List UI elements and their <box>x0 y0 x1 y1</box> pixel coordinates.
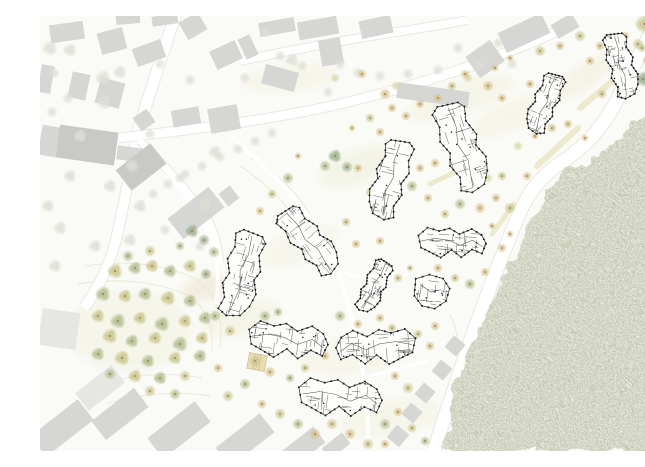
tree-trunk-dot <box>134 375 136 377</box>
tree <box>362 438 374 450</box>
tree-trunk-dot <box>201 337 203 339</box>
tree <box>147 188 159 200</box>
tree <box>420 436 430 446</box>
tree-trunk-dot <box>121 357 123 359</box>
tree-trunk-dot <box>509 57 511 59</box>
tree <box>401 111 411 121</box>
tree <box>497 171 507 181</box>
tree <box>447 81 457 91</box>
tree-trunk-dot <box>464 73 466 75</box>
tree <box>144 128 156 140</box>
tree-trunk-dot <box>254 360 256 362</box>
tree <box>379 88 391 100</box>
site-plan-drawing <box>40 16 645 451</box>
tree-trunk-dot <box>567 123 569 125</box>
tree <box>255 206 265 216</box>
tree-trunk-dot <box>379 240 381 242</box>
tree <box>402 68 414 80</box>
tree <box>574 30 586 42</box>
tree-trunk-dot <box>424 440 426 442</box>
tree <box>267 189 277 199</box>
tree <box>159 224 171 236</box>
tree <box>249 135 261 147</box>
tree-trunk-dot <box>437 267 439 269</box>
tree-trunk-dot <box>149 390 151 392</box>
tree-trunk-dot <box>357 167 359 169</box>
tree-trunk-dot <box>277 311 279 313</box>
tree <box>506 230 514 238</box>
tree-trunk-dot <box>161 323 163 325</box>
tree <box>264 366 276 378</box>
tree-trunk-dot <box>154 337 156 339</box>
building-footprint <box>207 104 241 134</box>
tree-trunk-dot <box>357 323 359 325</box>
tree <box>387 103 397 113</box>
tree-trunk-dot <box>289 377 291 379</box>
tree-trunk-dot <box>217 367 219 369</box>
tree <box>266 127 278 139</box>
tree-trunk-dot <box>589 60 591 62</box>
tree-trunk-dot <box>151 265 153 267</box>
tree <box>294 152 302 160</box>
tree-trunk-dot <box>384 443 386 445</box>
tree <box>406 264 414 272</box>
tree-trunk-dot <box>579 35 581 37</box>
tree-trunk-dot <box>244 383 246 385</box>
tree-trunk-dot <box>539 50 541 52</box>
tree-trunk-dot <box>179 245 181 247</box>
tree-trunk-dot <box>491 225 493 227</box>
tree-trunk-dot <box>271 193 273 195</box>
tree <box>322 86 334 98</box>
tree <box>504 202 516 214</box>
tree-trunk-dot <box>179 343 181 345</box>
tree-trunk-dot <box>184 375 186 377</box>
tree-trunk-dot <box>642 78 644 80</box>
tree <box>154 58 166 70</box>
tree-trunk-dot <box>494 67 496 69</box>
tree <box>353 163 363 173</box>
tree <box>214 151 226 163</box>
tree-trunk-dot <box>434 162 436 164</box>
tree-trunk-dot <box>427 197 429 199</box>
tree <box>407 423 417 433</box>
tree <box>341 161 353 173</box>
tree-trunk-dot <box>641 47 643 49</box>
tree <box>375 313 385 323</box>
tree <box>239 378 251 390</box>
tree-trunk-dot <box>229 330 231 332</box>
tree <box>433 93 443 103</box>
tree-trunk-dot <box>203 239 205 241</box>
tree <box>179 168 191 180</box>
tree-trunk-dot <box>147 360 149 362</box>
tree-trunk-dot <box>501 97 503 99</box>
tree <box>175 241 185 251</box>
tree-trunk-dot <box>264 315 266 317</box>
tree-trunk-dot <box>487 85 489 87</box>
tree-trunk-dot <box>479 207 481 209</box>
tree-trunk-dot <box>189 300 191 302</box>
tree <box>425 341 435 351</box>
tree <box>344 428 356 440</box>
tree <box>232 143 244 155</box>
tree <box>488 222 496 230</box>
tree-trunk-dot <box>114 270 116 272</box>
tree-trunk-dot <box>405 115 407 117</box>
tree <box>351 239 361 249</box>
tree-trunk-dot <box>169 270 171 272</box>
tree-trunk-dot <box>97 353 99 355</box>
tree-trunk-dot <box>109 335 111 337</box>
tree-trunk-dot <box>526 175 528 177</box>
tree-trunk-dot <box>501 247 503 249</box>
tree-trunk-dot <box>191 230 193 232</box>
tree <box>309 428 321 440</box>
tree-trunk-dot <box>297 155 299 157</box>
tree <box>440 209 450 219</box>
tree <box>292 418 304 430</box>
tree <box>513 141 523 151</box>
tree-trunk-dot <box>495 197 497 199</box>
tree-trunk-dot <box>397 411 399 413</box>
tree-trunk-dot <box>379 131 381 133</box>
tree-trunk-dot <box>369 117 371 119</box>
tree <box>491 193 501 203</box>
tree-trunk-dot <box>391 107 393 109</box>
tree-trunk-dot <box>259 210 261 212</box>
tree-trunk-dot <box>189 265 191 267</box>
tree-trunk-dot <box>601 93 603 95</box>
tree-trunk-dot <box>139 317 141 319</box>
tree-trunk-dot <box>384 93 386 95</box>
tree <box>379 418 391 430</box>
tree <box>274 50 286 62</box>
tree-trunk-dot <box>109 373 111 375</box>
tree <box>374 70 386 82</box>
tree-trunk-dot <box>339 315 341 317</box>
tree-trunk-dot <box>149 250 151 252</box>
tree <box>506 54 514 62</box>
tree-trunk-dot <box>529 83 531 85</box>
tree-trunk-dot <box>213 251 215 253</box>
tree <box>239 72 251 84</box>
tree <box>330 73 340 83</box>
tree-trunk-dot <box>551 127 553 129</box>
tree <box>406 180 418 192</box>
tree <box>48 67 60 79</box>
tree <box>452 42 464 54</box>
tree <box>474 60 486 72</box>
tree-trunk-dot <box>411 427 413 429</box>
tree <box>380 439 390 449</box>
tree-trunk-dot <box>409 267 411 269</box>
tree <box>62 92 74 104</box>
tree <box>260 26 272 38</box>
tree-trunk-dot <box>355 243 357 245</box>
tree <box>430 321 440 331</box>
tree-trunk-dot <box>367 443 369 445</box>
tree <box>274 408 286 420</box>
tree-trunk-dot <box>444 213 446 215</box>
tree-trunk-dot <box>134 267 136 269</box>
tree-trunk-dot <box>214 315 216 317</box>
tree <box>222 390 234 402</box>
tree <box>179 370 191 382</box>
tree <box>208 246 220 258</box>
tree <box>224 325 236 337</box>
tree-trunk-dot <box>227 395 229 397</box>
tree <box>393 407 403 417</box>
tree-trunk-dot <box>131 340 133 342</box>
tree <box>375 127 385 137</box>
tree <box>334 58 346 70</box>
tree-trunk-dot <box>509 233 511 235</box>
tree <box>415 163 425 173</box>
tree <box>198 234 210 246</box>
tree-trunk-dot <box>174 357 176 359</box>
tree <box>169 388 181 400</box>
tree-trunk-dot <box>391 327 393 329</box>
tree <box>273 307 283 317</box>
tree <box>464 278 476 290</box>
tree <box>450 273 460 283</box>
tree <box>492 37 504 49</box>
tree <box>341 217 351 227</box>
tree <box>402 382 414 394</box>
tree <box>104 368 116 380</box>
tree <box>144 245 156 257</box>
tree <box>213 363 223 373</box>
tree-trunk-dot <box>351 127 353 129</box>
tree-trunk-dot <box>417 333 419 335</box>
tree <box>415 99 425 109</box>
tree <box>534 45 546 57</box>
tree-trunk-dot <box>411 185 413 187</box>
tree-trunk-dot <box>459 203 461 205</box>
tree <box>525 79 535 89</box>
tree-trunk-dot <box>304 367 306 369</box>
tree <box>563 119 573 129</box>
tree <box>162 178 174 190</box>
tree-trunk-dot <box>384 423 386 425</box>
tree <box>46 106 58 118</box>
tree-trunk-dot <box>144 293 146 295</box>
tree <box>334 310 346 322</box>
tree-trunk-dot <box>102 293 104 295</box>
tree-trunk-dot <box>184 320 186 322</box>
tree <box>497 93 507 103</box>
tree-trunk-dot <box>361 73 363 75</box>
tree <box>390 371 400 381</box>
tree <box>282 172 294 184</box>
tree-trunk-dot <box>501 175 503 177</box>
tree-trunk-dot <box>469 283 471 285</box>
tree <box>353 319 363 329</box>
tree-trunk-dot <box>287 177 289 179</box>
tree <box>144 385 156 397</box>
tree-trunk-dot <box>204 317 206 319</box>
tree <box>319 160 331 172</box>
tree-trunk-dot <box>324 355 326 357</box>
tree-trunk-dot <box>167 297 169 299</box>
tree <box>257 399 267 409</box>
tree <box>285 373 295 383</box>
tree-trunk-dot <box>434 325 436 327</box>
tree <box>326 418 338 430</box>
tree-trunk-dot <box>419 103 421 105</box>
tree <box>423 193 433 203</box>
tree-trunk-dot <box>117 320 119 322</box>
tree-trunk-dot <box>346 166 348 168</box>
tree-trunk-dot <box>599 45 601 47</box>
tree <box>522 171 532 181</box>
tree-trunk-dot <box>261 403 263 405</box>
tree-trunk-dot <box>199 355 201 357</box>
tree-trunk-dot <box>397 277 399 279</box>
tree <box>497 243 507 253</box>
tree <box>585 56 595 66</box>
tree-trunk-dot <box>419 167 421 169</box>
tree <box>357 69 367 79</box>
tree-trunk-dot <box>454 277 456 279</box>
tree <box>581 134 589 142</box>
tree-trunk-dot <box>324 165 326 167</box>
tree-trunk-dot <box>584 137 586 139</box>
tree <box>200 268 212 280</box>
tree <box>480 267 490 277</box>
tree <box>454 198 466 210</box>
tree <box>391 81 401 91</box>
tree-trunk-dot <box>279 413 281 415</box>
tree-trunk-dot <box>559 45 561 47</box>
architectural-site-plan <box>40 16 645 451</box>
tree-trunk-dot <box>205 273 207 275</box>
tree-trunk-dot <box>297 423 299 425</box>
building-footprint <box>40 308 80 350</box>
tree <box>555 41 565 51</box>
tree <box>547 123 557 133</box>
tree <box>184 74 196 86</box>
tree <box>433 263 443 273</box>
tree-trunk-dot <box>451 85 453 87</box>
tree-trunk-dot <box>534 135 536 137</box>
tree <box>482 80 494 92</box>
tree-trunk-dot <box>407 387 409 389</box>
tree <box>430 158 440 168</box>
tree <box>365 113 375 123</box>
tree-trunk-dot <box>345 221 347 223</box>
tree <box>296 60 308 72</box>
tree <box>460 69 470 79</box>
tree <box>491 64 499 72</box>
tree-trunk-dot <box>127 255 129 257</box>
tree-trunk-dot <box>174 393 176 395</box>
tree <box>474 202 486 214</box>
tree <box>432 64 444 76</box>
tree-trunk-dot <box>509 207 511 209</box>
tree <box>249 355 261 367</box>
tree <box>122 250 134 262</box>
tree-trunk-dot <box>379 317 381 319</box>
tree <box>375 236 385 246</box>
tree <box>348 124 356 132</box>
tree-trunk-dot <box>331 423 333 425</box>
tree-trunk-dot <box>97 315 99 317</box>
tree-trunk-dot <box>437 97 439 99</box>
tree-trunk-dot <box>394 375 396 377</box>
tree-trunk-dot <box>269 371 271 373</box>
tree <box>597 89 607 99</box>
tree-trunk-dot <box>334 155 336 157</box>
tree-trunk-dot <box>124 295 126 297</box>
tree <box>300 363 310 373</box>
tree-trunk-dot <box>159 377 161 379</box>
tree-trunk-dot <box>429 345 431 347</box>
tree <box>393 273 403 283</box>
tree-trunk-dot <box>484 271 486 273</box>
tree <box>196 160 208 172</box>
